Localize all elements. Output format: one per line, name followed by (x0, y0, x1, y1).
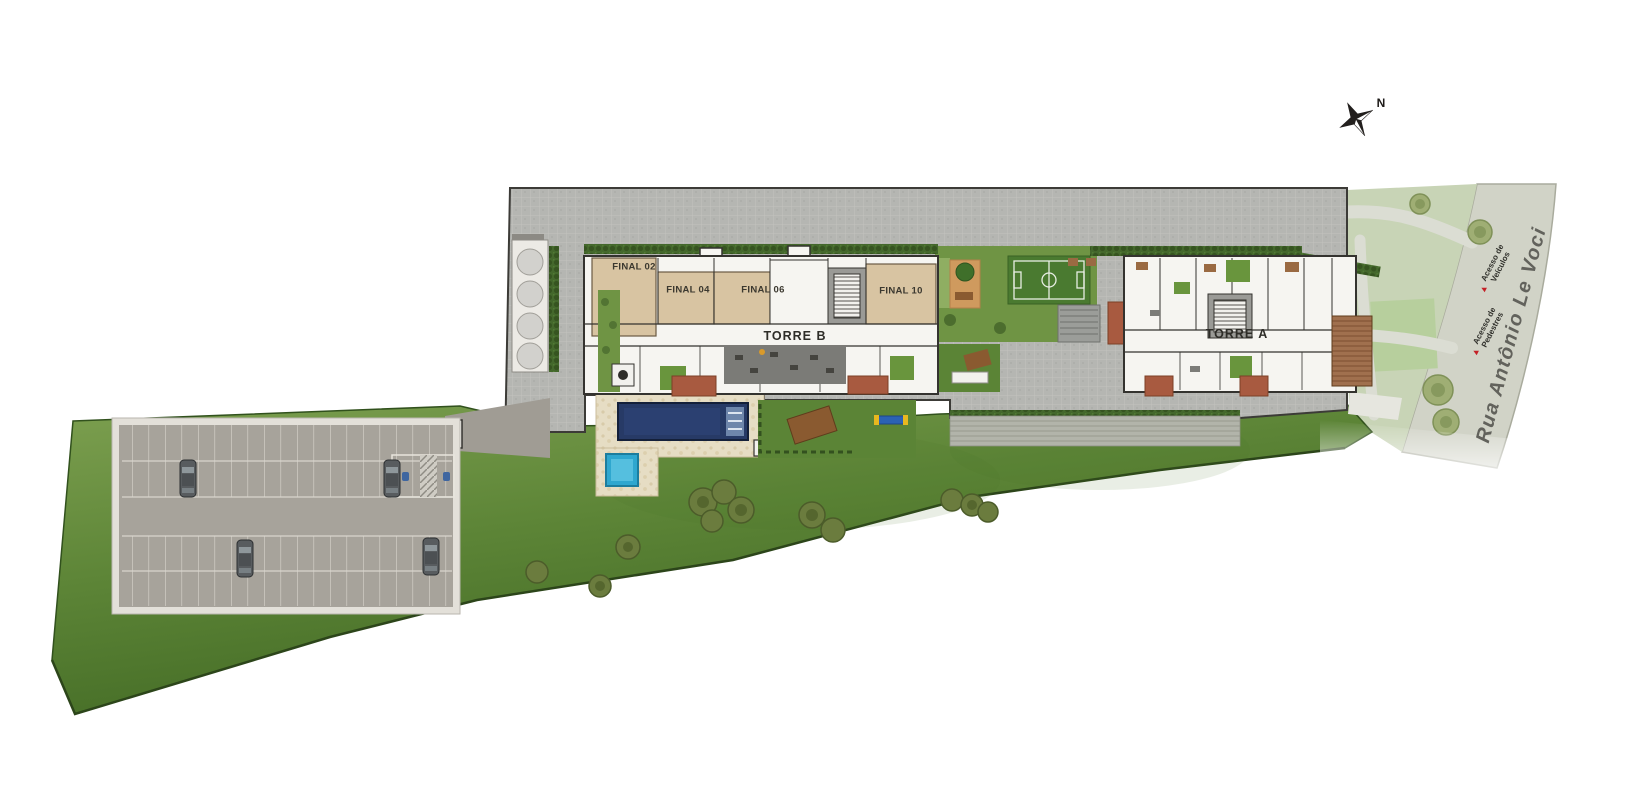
green-patio (1230, 356, 1252, 378)
parking-area (112, 418, 460, 614)
terracotta-patio (1240, 376, 1268, 396)
terracotta-patio (672, 376, 716, 396)
car (423, 538, 439, 575)
wheelchair-icon (443, 472, 450, 481)
unit-label-final-02: FINAL 02 (612, 262, 655, 273)
unit-label-final-10: FINAL 10 (879, 286, 922, 297)
tower-label-torre-b: TORRE B (763, 329, 826, 343)
gym (724, 346, 846, 384)
unit-label-final-04: FINAL 04 (666, 285, 709, 296)
tower-label-torre-a: TORRE A (1206, 327, 1269, 341)
garden-bush (994, 322, 1006, 334)
green-patio (890, 356, 914, 380)
playground (758, 400, 916, 458)
unit-final-06 (714, 272, 770, 324)
street-fade (1320, 420, 1545, 505)
unit-label-final-06: FINAL 06 (741, 285, 784, 296)
green-patio (1174, 282, 1190, 294)
seesaw (874, 415, 908, 425)
torre-a-building (1124, 256, 1372, 396)
amphitheater-terrace (950, 416, 1240, 446)
sand-playground (950, 260, 980, 308)
green-patio (1226, 260, 1250, 282)
wood-deck-stairs (1332, 316, 1372, 386)
site-plan-drawing (0, 0, 1627, 811)
pool-steps (726, 407, 744, 436)
terracotta-patio (1145, 376, 1173, 396)
site-plan: FINAL 02 FINAL 04 FINAL 06 FINAL 10 TORR… (0, 0, 1627, 811)
north-label: N (1377, 96, 1386, 110)
garden-bush (944, 314, 956, 326)
unit-final-04 (658, 272, 714, 324)
wheelchair-icon (402, 472, 409, 481)
playground-lawn (758, 400, 916, 458)
vent-shafts (512, 234, 559, 372)
compass-icon (1330, 93, 1381, 144)
torre-b-core (828, 268, 866, 324)
car (237, 540, 253, 577)
car (384, 460, 400, 497)
terracotta-patio (848, 376, 888, 394)
car (180, 460, 196, 497)
kids-pool-water (611, 459, 633, 481)
pool-water-highlight (624, 408, 720, 435)
garden-bench (952, 372, 988, 383)
